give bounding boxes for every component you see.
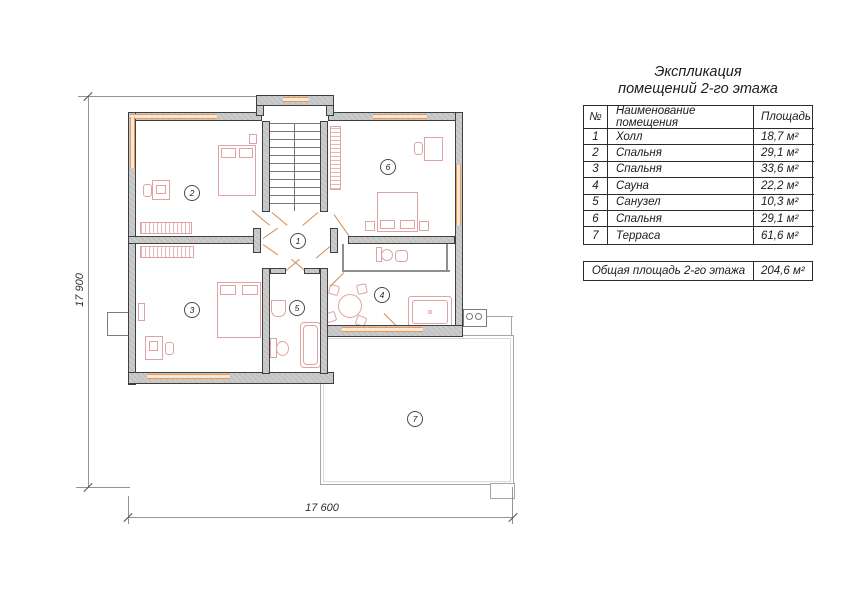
shower-drain bbox=[428, 310, 432, 314]
dim-label-bottom: 17 600 bbox=[296, 502, 348, 514]
nightstand bbox=[419, 221, 429, 231]
terrace-inner-line bbox=[323, 338, 511, 482]
toilet-bowl bbox=[276, 341, 289, 356]
terrace-outline bbox=[320, 335, 514, 485]
partition bbox=[446, 244, 448, 272]
vent-circle bbox=[466, 313, 473, 320]
table-cell: Сауна bbox=[608, 178, 754, 194]
table-cell: 61,6 м² bbox=[754, 227, 814, 243]
door-leaf bbox=[263, 228, 278, 239]
door-leaf bbox=[272, 212, 288, 226]
chair bbox=[143, 184, 152, 197]
vent-circle bbox=[475, 313, 482, 320]
bathtub-inner bbox=[303, 325, 318, 365]
table-cell: 7 bbox=[584, 227, 608, 243]
table-cell: 10,3 м² bbox=[754, 195, 814, 211]
window bbox=[130, 117, 135, 168]
wardrobe bbox=[140, 246, 194, 258]
table-title-line2: помещений 2-го этажа bbox=[583, 81, 813, 97]
wardrobe bbox=[330, 126, 341, 190]
partition bbox=[342, 244, 344, 272]
window bbox=[342, 327, 423, 332]
desk-monitor bbox=[156, 185, 166, 194]
pillow bbox=[220, 285, 236, 295]
stair-wall-right bbox=[320, 121, 328, 212]
table-cell: Спальня bbox=[608, 211, 754, 227]
pillow bbox=[239, 148, 253, 158]
pillow bbox=[242, 285, 258, 295]
sink bbox=[395, 250, 408, 262]
chair bbox=[165, 342, 174, 355]
table-cell: Спальня bbox=[608, 162, 754, 178]
wall-stub bbox=[304, 268, 320, 274]
door-leaf bbox=[302, 212, 318, 226]
door-leaf bbox=[263, 244, 278, 255]
room-label-1: 1 bbox=[290, 233, 306, 249]
table-cell: 6 bbox=[584, 211, 608, 227]
window bbox=[456, 165, 461, 225]
desk bbox=[424, 137, 443, 161]
pillow bbox=[221, 148, 236, 158]
terrace-edge-line bbox=[485, 316, 513, 317]
sink bbox=[271, 300, 286, 317]
nightstand bbox=[365, 221, 375, 231]
table-cell: Терраса bbox=[608, 227, 754, 243]
chimney bbox=[107, 312, 129, 336]
table-cell: 22,2 м² bbox=[754, 178, 814, 194]
table-cell: 33,6 м² bbox=[754, 162, 814, 178]
table-cell: 29,1 м² bbox=[754, 211, 814, 227]
chair bbox=[414, 142, 423, 155]
wall-stub bbox=[270, 268, 286, 274]
stair-bay-side bbox=[326, 105, 334, 116]
table-cell: 18,7 м² bbox=[754, 129, 814, 145]
door-leaf bbox=[316, 246, 330, 258]
room-label-6: 6 bbox=[380, 159, 396, 175]
extension-line bbox=[128, 496, 129, 524]
table-cell: 4 bbox=[584, 178, 608, 194]
dim-label-left: 17 900 bbox=[60, 265, 100, 315]
partition bbox=[342, 270, 450, 272]
wall-room5-right bbox=[320, 268, 328, 374]
room-label-3: 3 bbox=[184, 302, 200, 318]
pillow bbox=[380, 220, 395, 229]
staircase bbox=[270, 123, 320, 211]
door-leaf bbox=[252, 210, 270, 226]
wall-cap bbox=[330, 228, 338, 253]
desk-monitor bbox=[149, 341, 158, 351]
room-label-7: 7 bbox=[407, 411, 423, 427]
stair-wall-left bbox=[262, 121, 270, 212]
col-header-name: Наименование помещения bbox=[608, 106, 754, 129]
stair-bay-side bbox=[256, 105, 264, 116]
floor-plan-sheet: 1 2 3 4 5 6 7 17 900 17 600 Экспликация … bbox=[0, 0, 862, 610]
room-label-4: 4 bbox=[374, 287, 390, 303]
pillow bbox=[400, 220, 415, 229]
col-header-area: Площадь bbox=[754, 106, 814, 129]
room-label-5: 5 bbox=[289, 300, 305, 316]
table-cell: Холл bbox=[608, 129, 754, 145]
window bbox=[373, 114, 427, 119]
wall-cap bbox=[253, 228, 261, 253]
window bbox=[283, 97, 309, 102]
extension-line bbox=[76, 487, 130, 488]
table-cell: 3 bbox=[584, 162, 608, 178]
wardrobe bbox=[140, 222, 192, 234]
table-cell: 1 bbox=[584, 129, 608, 145]
table-cell: 29,1 м² bbox=[754, 145, 814, 161]
toilet-bowl bbox=[381, 249, 393, 261]
rooms-table: № Наименование помещения Площадь 1 Холл … bbox=[583, 105, 813, 245]
wall-rooms-2-3 bbox=[128, 236, 255, 244]
chair bbox=[356, 283, 368, 295]
table-cell: Санузел bbox=[608, 195, 754, 211]
table-cell: Спальня bbox=[608, 145, 754, 161]
window bbox=[147, 374, 230, 379]
table-cell: 5 bbox=[584, 195, 608, 211]
extension-line bbox=[78, 96, 256, 97]
window bbox=[130, 114, 217, 119]
dimension-line-bottom bbox=[128, 517, 513, 518]
wall-hall-right bbox=[348, 236, 455, 244]
wall-room5-left bbox=[262, 268, 270, 374]
nightstand bbox=[249, 134, 257, 144]
staircase-divider bbox=[294, 123, 295, 211]
table-title-line1: Экспликация bbox=[583, 64, 813, 80]
total-value: 204,6 м² bbox=[754, 262, 814, 280]
table-cell: 2 bbox=[584, 145, 608, 161]
room-label-2: 2 bbox=[184, 185, 200, 201]
terrace-edge-line bbox=[511, 317, 512, 335]
total-label: Общая площадь 2-го этажа bbox=[584, 262, 754, 280]
total-row: Общая площадь 2-го этажа 204,6 м² bbox=[583, 261, 813, 281]
col-header-num: № bbox=[584, 106, 608, 129]
shelf bbox=[138, 303, 145, 321]
